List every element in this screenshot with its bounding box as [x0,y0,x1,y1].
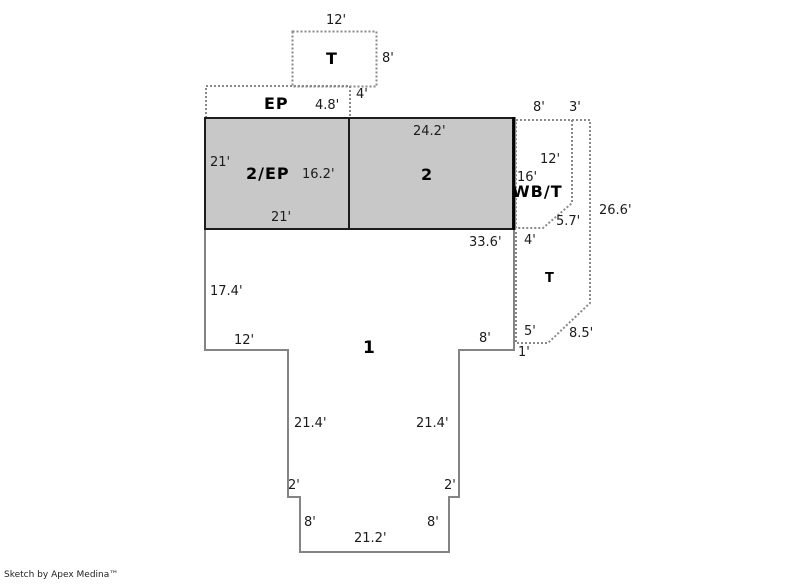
dim-2ep-bottom: 21' [271,211,291,224]
room-label-wbt: WB/T [512,184,563,200]
dim-t-85: 8.5' [569,327,593,340]
area-1-outline [205,229,514,552]
room-label-2ep: 2/EP [246,166,290,182]
dim-wb-top-3: 3' [569,101,581,114]
dim-1-right-8: 8' [479,332,491,345]
dim-right-214: 21.4' [416,417,449,430]
dim-bottom-right-8: 8' [427,516,439,529]
dim-2-top: 24.2' [413,125,446,138]
dim-1-left: 17.4' [210,285,243,298]
dim-wb-top-8: 8' [533,101,545,114]
dim-t-5: 5' [524,325,536,338]
dim-wb-57: 5.7' [556,215,580,228]
dim-wb-12: 12' [540,153,560,166]
dim-2ep-height: 16.2' [302,168,335,181]
dim-ep-depth: 4.8' [315,99,339,112]
dim-t-height: 8' [382,52,394,65]
dim-left-2: 2' [288,479,300,492]
dim-right-2: 2' [444,479,456,492]
room-label-t-right: T [545,272,554,285]
dim-t-4: 4' [524,234,536,247]
floorplan-sketch: 12' 8' 4.8' 4' 8' 3' 21' 16.2' 21' 24.2'… [0,0,800,587]
room-label-1: 1 [363,340,375,357]
room-label-2: 2 [421,167,433,183]
dim-right-266: 26.6' [599,204,632,217]
dim-2ep-left: 21' [210,156,230,169]
floorplan-canvas [0,0,800,587]
dim-t-top-width: 12' [326,14,346,27]
dim-left-214: 21.4' [294,417,327,430]
dim-ep-right: 4' [356,88,368,101]
room-label-t-upper: T [326,51,338,67]
sketch-credit: Sketch by Apex Medina™ [4,571,118,580]
dim-1-left-bottom: 12' [234,334,254,347]
dim-1-top: 33.6' [469,236,502,249]
dim-bottom-left-8: 8' [304,516,316,529]
dim-t-1: 1' [518,346,530,359]
room-label-ep: EP [264,96,289,112]
dim-bottom-212: 21.2' [354,532,387,545]
